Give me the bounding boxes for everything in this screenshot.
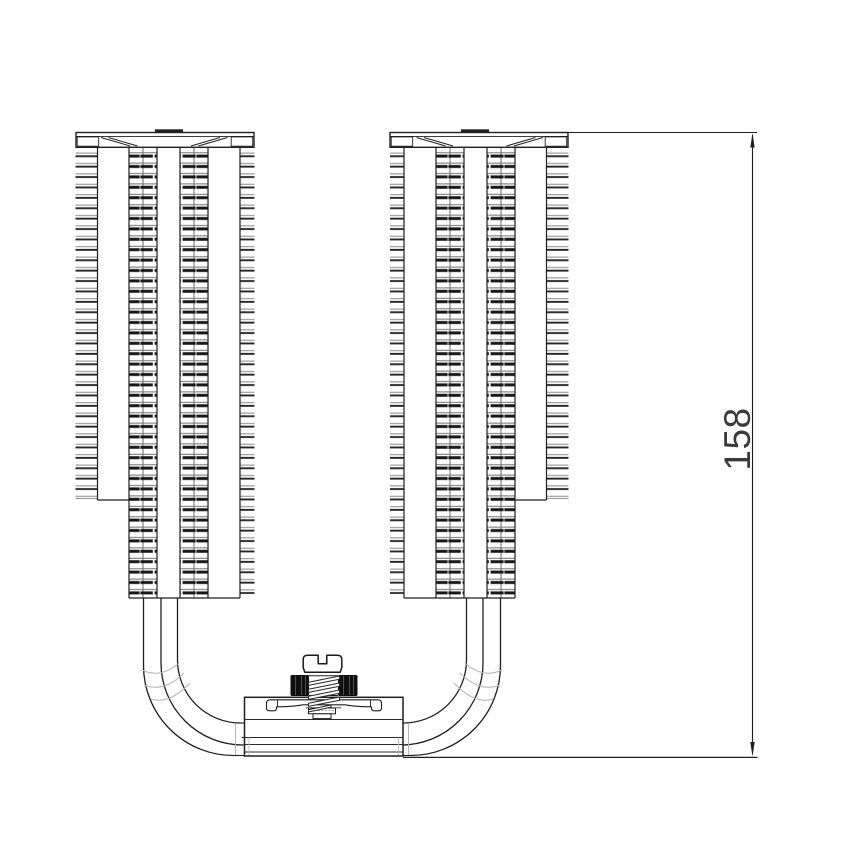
- right-fin-tower: [390, 129, 569, 598]
- left-fin-tower: [76, 129, 255, 598]
- left-tower-left-fin-stubs: [76, 150, 98, 499]
- left-tower-heatpipe-column-1: [130, 148, 157, 595]
- screw-head: [303, 655, 342, 672]
- left-tower-top-plate: [76, 129, 254, 147]
- drawing-canvas: 158: [0, 0, 850, 850]
- dimension-label: 158: [717, 407, 758, 470]
- heat-pipe-left: [142, 598, 247, 756]
- cooler-drawing: 158: [0, 0, 850, 850]
- left-tower-right-fin-stubs: [240, 150, 255, 594]
- right-tower-top-plate: [390, 129, 568, 147]
- pipe-transition-marks-left: [142, 663, 236, 755]
- dimension-arrow-up: [750, 133, 754, 148]
- pipe-transition-marks-right: [409, 663, 503, 755]
- left-tower-heatpipe-column-2: [181, 148, 208, 595]
- heat-pipe-right: [399, 598, 502, 756]
- dimension-arrow-down: [750, 742, 754, 757]
- right-tower-heatpipe-column-1: [437, 148, 464, 595]
- right-tower-left-fin-stubs: [390, 150, 405, 594]
- right-tower-heatpipe-column-2: [488, 148, 515, 595]
- right-tower-right-fin-stubs: [547, 150, 569, 499]
